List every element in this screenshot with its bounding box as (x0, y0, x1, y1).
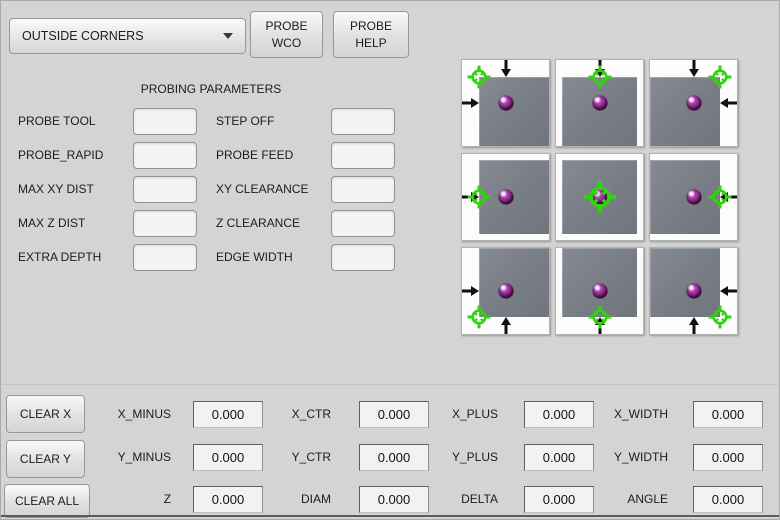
probe-tip-sphere-icon (498, 190, 513, 205)
y-minus-label: Y_MINUS (51, 444, 171, 471)
target-crosshair-icon (583, 180, 617, 214)
max-xy-dist-input[interactable] (133, 176, 197, 203)
left-arrow-icon (720, 98, 737, 109)
extra-depth-label: EXTRA DEPTH (18, 244, 101, 271)
y-width-label: Y_WIDTH (548, 444, 668, 471)
down-arrow-icon (688, 60, 699, 77)
probe-cell-bottom-left-corner[interactable] (461, 247, 550, 335)
probe-cell-right-edge[interactable] (649, 153, 738, 241)
probe-rapid-input[interactable] (133, 142, 197, 169)
target-crosshair-icon (588, 65, 612, 89)
chevron-down-icon (223, 33, 233, 39)
target-crosshair-icon (708, 65, 732, 89)
probing-parameters-title: PROBING PARAMETERS (1, 82, 421, 96)
probe-cell-top-left-corner[interactable] (461, 59, 550, 147)
probe-screen-window: OUTSIDE CORNERS PROBE WCO PROBE HELP PRO… (0, 0, 780, 520)
probe-cell-center[interactable] (555, 153, 644, 241)
probe-cell-bottom-right-corner[interactable] (649, 247, 738, 335)
edge-width-input[interactable] (331, 244, 395, 271)
z-clearance-input[interactable] (331, 210, 395, 237)
probe-tip-sphere-icon (498, 284, 513, 299)
step-off-input[interactable] (331, 108, 395, 135)
x-width-value: 0.000 (693, 401, 763, 428)
target-crosshair-icon (467, 65, 491, 89)
probe-tip-sphere-icon (686, 96, 701, 111)
probe-rapid-label: PROBE_RAPID (18, 142, 103, 169)
z-label: Z (51, 486, 171, 513)
y-width-value: 0.000 (693, 444, 763, 471)
probe-cell-top-right-corner[interactable] (649, 59, 738, 147)
delta-label: DELTA (378, 486, 498, 513)
x-minus-label: X_MINUS (51, 401, 171, 428)
extra-depth-input[interactable] (133, 244, 197, 271)
probe-help-button[interactable]: PROBE HELP (333, 11, 409, 58)
probe-tip-sphere-icon (686, 284, 701, 299)
corner-mode-selected-value: OUTSIDE CORNERS (22, 29, 223, 43)
y-plus-label: Y_PLUS (378, 444, 498, 471)
up-arrow-icon (688, 317, 699, 334)
x-ctr-label: X_CTR (211, 401, 331, 428)
probe-cell-top-edge[interactable] (555, 59, 644, 147)
right-arrow-icon (462, 98, 479, 109)
edge-width-label: EDGE WIDTH (216, 244, 293, 271)
target-crosshair-icon (467, 185, 491, 209)
xy-clearance-input[interactable] (331, 176, 395, 203)
probe-cell-left-edge[interactable] (461, 153, 550, 241)
down-arrow-icon (500, 60, 511, 77)
max-z-dist-label: MAX Z DIST (18, 210, 85, 237)
max-z-dist-input[interactable] (133, 210, 197, 237)
probe-feed-input[interactable] (331, 142, 395, 169)
target-crosshair-icon (708, 305, 732, 329)
angle-label: ANGLE (548, 486, 668, 513)
xy-clearance-label: XY CLEARANCE (216, 176, 308, 203)
probe-wco-button[interactable]: PROBE WCO (250, 11, 323, 58)
section-divider (2, 384, 778, 385)
probe-feed-label: PROBE FEED (216, 142, 293, 169)
x-plus-label: X_PLUS (378, 401, 498, 428)
target-crosshair-icon (467, 305, 491, 329)
corner-mode-dropdown[interactable]: OUTSIDE CORNERS (9, 18, 246, 54)
x-width-label: X_WIDTH (548, 401, 668, 428)
probe-cell-bottom-edge[interactable] (555, 247, 644, 335)
probe-tip-sphere-icon (592, 284, 607, 299)
left-arrow-icon (720, 286, 737, 297)
z-clearance-label: Z CLEARANCE (216, 210, 300, 237)
probe-tip-sphere-icon (498, 96, 513, 111)
angle-value: 0.000 (693, 486, 763, 513)
up-arrow-icon (500, 317, 511, 334)
window-bottom-frame (1, 515, 779, 517)
step-off-label: STEP OFF (216, 108, 274, 135)
probe-direction-grid (461, 59, 738, 335)
target-crosshair-icon (588, 305, 612, 329)
probe-tool-input[interactable] (133, 108, 197, 135)
probe-tip-sphere-icon (592, 96, 607, 111)
probe-tip-sphere-icon (686, 190, 701, 205)
right-arrow-icon (462, 286, 479, 297)
y-ctr-label: Y_CTR (211, 444, 331, 471)
diam-label: DIAM (211, 486, 331, 513)
max-xy-dist-label: MAX XY DIST (18, 176, 94, 203)
target-crosshair-icon (708, 185, 732, 209)
probe-tool-label: PROBE TOOL (18, 108, 96, 135)
